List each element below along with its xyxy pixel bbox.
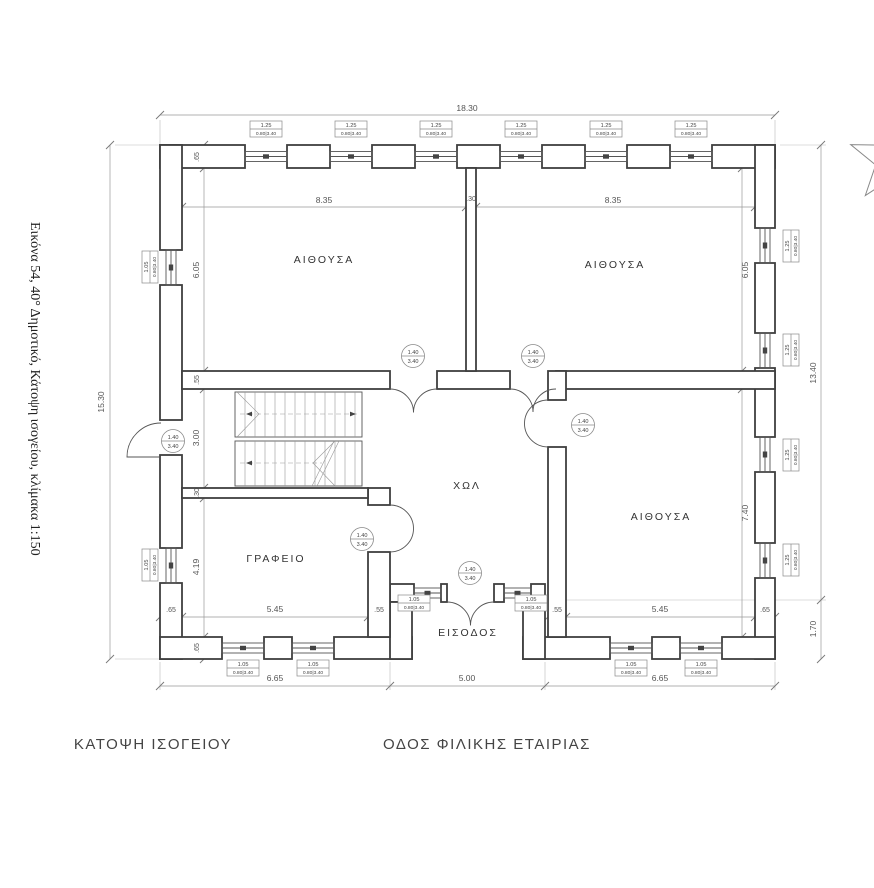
wall-segment bbox=[437, 371, 510, 389]
door-arc-side-exit bbox=[127, 423, 161, 457]
window-marker bbox=[263, 154, 269, 158]
window-width-label: 1.25 bbox=[516, 123, 527, 129]
stair-upper-flight bbox=[235, 392, 362, 437]
window-tag: 1.050.80|3.40 bbox=[142, 549, 158, 581]
door-width-label: 1.40 bbox=[357, 533, 368, 539]
window-sill-label: 0.80|3.40 bbox=[256, 131, 277, 137]
door-height-label: 3.40 bbox=[168, 444, 179, 450]
wall-segment bbox=[372, 145, 415, 168]
dim-label: 8.35 bbox=[316, 195, 333, 205]
door-width-label: 1.40 bbox=[408, 350, 419, 356]
window-sill-label: 0.80|3.40 bbox=[793, 236, 799, 257]
dim-label: 5.45 bbox=[267, 604, 284, 614]
window-tag: 1.250.80|3.40 bbox=[250, 121, 282, 137]
window-width-label: 1.05 bbox=[526, 597, 537, 603]
window-marker bbox=[763, 243, 767, 249]
window-width-label: 1.25 bbox=[346, 123, 357, 129]
window-sill-label: 0.80|3.40 bbox=[404, 605, 425, 611]
wall-segment bbox=[182, 488, 368, 498]
window-tag: 1.050.80|3.40 bbox=[142, 251, 158, 283]
stair-lower-flight bbox=[235, 441, 362, 486]
wall-segment bbox=[264, 637, 292, 659]
dim-label: .55 bbox=[194, 375, 201, 385]
window-sill-label: 0.80|3.40 bbox=[621, 670, 642, 676]
dim-label: 15.30 bbox=[96, 391, 106, 413]
window-marker bbox=[425, 591, 431, 595]
dim-label: 18.30 bbox=[456, 103, 478, 113]
window-marker bbox=[169, 563, 173, 569]
wall-segment bbox=[722, 637, 775, 659]
window-marker bbox=[763, 348, 767, 354]
wall-segment bbox=[548, 371, 566, 400]
dim-label: .65 bbox=[194, 152, 201, 162]
wall-segment bbox=[160, 145, 182, 250]
stair-wedges bbox=[237, 392, 335, 486]
room-label-classroom-br: ΑΙΘΟΥΣΑ bbox=[631, 511, 691, 523]
window-width-label: 1.05 bbox=[144, 262, 150, 273]
window-marker bbox=[688, 154, 694, 158]
window-sill-label: 0.80|3.40 bbox=[793, 340, 799, 361]
window-width-label: 1.25 bbox=[785, 345, 791, 356]
wall-segment bbox=[494, 584, 504, 602]
wall-segment bbox=[160, 285, 182, 420]
window-tag: 1.250.80|3.40 bbox=[420, 121, 452, 137]
window-sill-label: 0.80|3.40 bbox=[596, 131, 617, 137]
window-marker bbox=[310, 646, 316, 650]
door-height-label: 3.40 bbox=[465, 576, 476, 582]
room-label-classroom-tl: ΑΙΘΟΥΣΑ bbox=[294, 254, 354, 266]
dim-label: 3.00 bbox=[191, 429, 201, 446]
stair-walkline bbox=[240, 414, 358, 463]
wall-segment bbox=[457, 145, 500, 168]
window-marker bbox=[763, 452, 767, 458]
window-tag: 1.050.80|3.40 bbox=[515, 595, 547, 611]
window-sill-label: 0.80|3.40 bbox=[511, 131, 532, 137]
door-arc-office bbox=[390, 505, 414, 552]
window-tag: 1.050.80|3.40 bbox=[227, 660, 259, 676]
window-tag: 1.050.80|3.40 bbox=[398, 595, 430, 611]
dim-label: 5.45 bbox=[652, 604, 669, 614]
dim-label: 13.40 bbox=[808, 362, 818, 384]
door-tag: 1.403.40 bbox=[459, 562, 482, 585]
dim-label: 1.70 bbox=[808, 620, 818, 637]
dim-label: 4.19 bbox=[191, 558, 201, 575]
wall-segment bbox=[160, 637, 222, 659]
wall-segment bbox=[627, 145, 670, 168]
dim-label: .55 bbox=[374, 607, 384, 614]
wall-segment bbox=[755, 263, 775, 333]
stair-treads bbox=[245, 392, 355, 486]
door-arc-classroom-br bbox=[525, 400, 549, 447]
dim-label: 6.05 bbox=[191, 261, 201, 278]
dim-label: 5.00 bbox=[459, 673, 476, 683]
window-sill-label: 0.80|3.40 bbox=[426, 131, 447, 137]
window-marker bbox=[515, 591, 521, 595]
room-label-classroom-tr: ΑΙΘΟΥΣΑ bbox=[585, 259, 645, 271]
door-tag: 1.403.40 bbox=[572, 414, 595, 437]
window-width-label: 1.25 bbox=[785, 450, 791, 461]
window-width-label: 1.05 bbox=[238, 662, 249, 668]
wall-segment bbox=[287, 145, 330, 168]
window-width-label: 1.25 bbox=[261, 123, 272, 129]
door-width-label: 1.40 bbox=[465, 567, 476, 573]
wall-segment bbox=[441, 584, 447, 602]
plan-title: ΚΑΤΟΨΗ ΙΣΟΓΕΙΟΥ bbox=[74, 736, 232, 753]
door-tag: 1.403.40 bbox=[522, 345, 545, 368]
wall-segment bbox=[652, 637, 680, 659]
dim-label: .30 bbox=[194, 488, 201, 498]
window-tag: 1.250.80|3.40 bbox=[783, 439, 799, 471]
window-marker bbox=[169, 265, 173, 271]
door-height-label: 3.40 bbox=[357, 542, 368, 548]
room-label-hall: ΧΩΛ bbox=[453, 480, 481, 492]
room-label-office: ΓΡΑΦΕΙΟ bbox=[246, 553, 305, 565]
window-width-label: 1.05 bbox=[409, 597, 420, 603]
window-marker bbox=[240, 646, 246, 650]
window-sill-label: 0.80|3.40 bbox=[681, 131, 702, 137]
window-width-label: 1.25 bbox=[785, 241, 791, 252]
window-width-label: 1.25 bbox=[601, 123, 612, 129]
window-width-label: 1.25 bbox=[785, 555, 791, 566]
wall-segment bbox=[556, 371, 775, 389]
dim-label: .55 bbox=[552, 607, 562, 614]
door-width-label: 1.40 bbox=[578, 419, 589, 425]
dim-label: .30 bbox=[466, 196, 476, 203]
window-tag: 1.250.80|3.40 bbox=[505, 121, 537, 137]
staircase bbox=[235, 392, 362, 486]
door-arc-classroom-tl bbox=[390, 389, 437, 413]
door-arc-entrance bbox=[447, 602, 494, 626]
drawing-sheet: 1.250.80|3.401.250.80|3.401.250.80|3.401… bbox=[0, 0, 874, 888]
street-title: ΟΔΟΣ ΦΙΛΙΚΗΣ ΕΤΑΙΡΙΑΣ bbox=[383, 736, 591, 753]
window-marker bbox=[628, 646, 634, 650]
window-tag: 1.250.80|3.40 bbox=[783, 230, 799, 262]
window-sill-label: 0.80|3.40 bbox=[152, 257, 158, 278]
window-width-label: 1.05 bbox=[696, 662, 707, 668]
window-tag: 1.250.80|3.40 bbox=[335, 121, 367, 137]
wall-segment bbox=[542, 145, 585, 168]
door-width-label: 1.40 bbox=[168, 435, 179, 441]
window-tag: 1.050.80|3.40 bbox=[615, 660, 647, 676]
window-sill-label: 0.80|3.40 bbox=[691, 670, 712, 676]
door-tag: 1.403.40 bbox=[402, 345, 425, 368]
window-width-label: 1.05 bbox=[626, 662, 637, 668]
room-label-entrance: ΕΙΣΟΔΟΣ bbox=[438, 627, 498, 639]
window-width-label: 1.25 bbox=[686, 123, 697, 129]
door-width-label: 1.40 bbox=[528, 350, 539, 356]
door-height-label: 3.40 bbox=[528, 359, 539, 365]
window-width-label: 1.05 bbox=[144, 560, 150, 571]
window-sill-label: 0.80|3.40 bbox=[233, 670, 254, 676]
window-marker bbox=[433, 154, 439, 158]
wall-segment bbox=[368, 488, 390, 505]
window-sill-label: 0.80|3.40 bbox=[152, 555, 158, 576]
dim-label: .65 bbox=[166, 607, 176, 614]
window-tag: 1.250.80|3.40 bbox=[783, 544, 799, 576]
window-sill-label: 0.80|3.40 bbox=[521, 605, 542, 611]
dim-label: 6.65 bbox=[267, 673, 284, 683]
window-sill-label: 0.80|3.40 bbox=[793, 550, 799, 571]
wall-segment bbox=[182, 371, 390, 389]
window-tag: 1.050.80|3.40 bbox=[685, 660, 717, 676]
window-marker bbox=[698, 646, 704, 650]
dim-label: 6.65 bbox=[652, 673, 669, 683]
wall-segment bbox=[755, 145, 775, 228]
window-marker bbox=[763, 558, 767, 564]
dim-label: 6.05 bbox=[740, 261, 750, 278]
window-marker bbox=[603, 154, 609, 158]
door-tag: 1.403.40 bbox=[351, 528, 374, 551]
figure-caption: Εικόνα 54, 40° Δημοτικό, Κάτοψη ισογείου… bbox=[27, 222, 42, 556]
floor-plan-svg: 1.250.80|3.401.250.80|3.401.250.80|3.401… bbox=[0, 0, 874, 888]
stair-arrows bbox=[246, 412, 356, 466]
window-tag: 1.050.80|3.40 bbox=[297, 660, 329, 676]
north-star-icon bbox=[851, 115, 874, 197]
window-tag: 1.250.80|3.40 bbox=[783, 334, 799, 366]
door-tag: 1.403.40 bbox=[162, 430, 185, 453]
window-tag: 1.250.80|3.40 bbox=[590, 121, 622, 137]
door-height-label: 3.40 bbox=[408, 359, 419, 365]
window-width-label: 1.25 bbox=[431, 123, 442, 129]
window-sill-label: 0.80|3.40 bbox=[793, 445, 799, 466]
window-marker bbox=[518, 154, 524, 158]
dim-label: .65 bbox=[194, 643, 201, 653]
door-height-label: 3.40 bbox=[578, 428, 589, 434]
window-sill-label: 0.80|3.40 bbox=[303, 670, 324, 676]
dim-label: 8.35 bbox=[605, 195, 622, 205]
window-marker bbox=[348, 154, 354, 158]
dim-label: 7.40 bbox=[740, 504, 750, 521]
wall-segment bbox=[368, 552, 390, 637]
window-tag: 1.250.80|3.40 bbox=[675, 121, 707, 137]
window-width-label: 1.05 bbox=[308, 662, 319, 668]
wall-segment bbox=[755, 472, 775, 543]
wall-segment bbox=[160, 455, 182, 548]
dim-label: .65 bbox=[760, 607, 770, 614]
window-sill-label: 0.80|3.40 bbox=[341, 131, 362, 137]
